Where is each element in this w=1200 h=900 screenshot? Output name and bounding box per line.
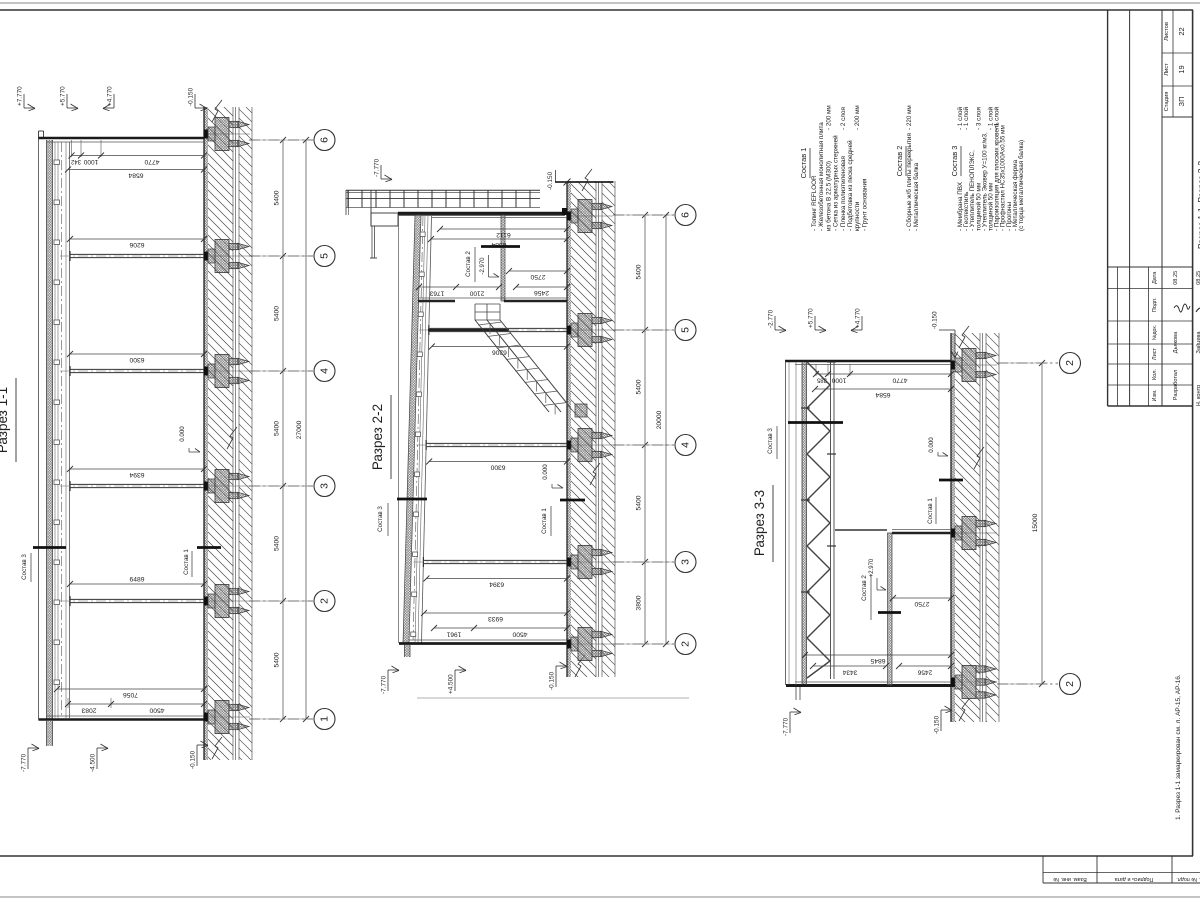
svg-text:- 200 мм: - 200 мм (825, 105, 832, 130)
svg-text:Состав 3: Состав 3 (950, 146, 959, 177)
svg-text:2: 2 (319, 598, 331, 604)
svg-text:08.25: 08.25 (1196, 271, 1200, 285)
svg-text:- 1 слой: - 1 слой (962, 107, 970, 130)
svg-text:1763: 1763 (429, 289, 444, 296)
svg-text:Состав 2: Состав 2 (895, 146, 904, 177)
svg-text:5400: 5400 (274, 306, 281, 321)
svg-text:ЗП: ЗП (1177, 97, 1186, 107)
svg-text:Листов: Листов (1164, 22, 1170, 41)
svg-text:3: 3 (319, 483, 331, 489)
svg-text:1. Разрез 1-1 замаркирован см.: 1. Разрез 1-1 замаркирован см. л. АР-15,… (1175, 674, 1182, 820)
svg-text:Подпись и дата: Подпись и дата (1115, 876, 1154, 882)
svg-text:2456: 2456 (917, 669, 932, 676)
svg-text:2: 2 (1064, 360, 1076, 366)
svg-text:№док.: №док. (1152, 325, 1158, 340)
svg-text:(с торца металлическая балка): (с торца металлическая балка) (1017, 140, 1025, 231)
svg-text:6300: 6300 (129, 356, 144, 363)
svg-text:5400: 5400 (274, 652, 281, 667)
svg-text:5400: 5400 (636, 495, 643, 510)
svg-text:+2.970: +2.970 (869, 558, 875, 577)
svg-text:Изм.: Изм. (1152, 389, 1158, 401)
svg-text:-0.150: -0.150 (190, 750, 197, 769)
svg-text:6584: 6584 (128, 172, 143, 179)
svg-text:из бетона В 22,5 (М300): из бетона В 22,5 (М300) (824, 161, 832, 231)
svg-text:6845: 6845 (870, 657, 885, 664)
svg-text:2100: 2100 (469, 289, 484, 296)
svg-text:1961: 1961 (446, 631, 461, 638)
svg-text:4770: 4770 (892, 377, 907, 384)
svg-text:6206: 6206 (129, 241, 144, 248)
svg-text:Дьякова: Дьякова (1173, 331, 1179, 353)
svg-text:20000: 20000 (656, 410, 663, 429)
svg-text:3800: 3800 (636, 595, 643, 610)
svg-text:+4.770: +4.770 (107, 86, 114, 106)
svg-text:- 3 слоя: - 3 слоя (975, 107, 982, 130)
svg-text:+4.500: +4.500 (448, 674, 455, 694)
svg-text:Разрез 1-1: Разрез 1-1 (0, 387, 10, 453)
svg-text:Подп.: Подп. (1152, 297, 1158, 312)
svg-text:Лист: Лист (1152, 347, 1158, 360)
svg-text:08.25: 08.25 (1173, 271, 1179, 285)
svg-text:2: 2 (1064, 681, 1076, 687)
svg-text:+5.770: +5.770 (808, 308, 815, 328)
svg-text:Состав 1: Состав 1 (541, 508, 548, 534)
svg-text:+7.770: +7.770 (17, 86, 24, 106)
svg-text:-7.770: -7.770 (381, 675, 388, 694)
svg-text:- Топинг REFLOOR: - Топинг REFLOOR (811, 175, 818, 231)
svg-text:4500: 4500 (149, 707, 164, 714)
svg-text:1000: 1000 (83, 158, 98, 165)
svg-text:2: 2 (680, 641, 692, 647)
svg-text:4: 4 (319, 368, 331, 374)
svg-text:6394: 6394 (129, 471, 144, 478)
svg-text:6: 6 (319, 137, 331, 143)
svg-text:1: 1 (319, 716, 331, 722)
svg-text:385: 385 (816, 377, 827, 383)
svg-text:Состав 1: Состав 1 (799, 148, 808, 179)
svg-text:Разрез 3-3: Разрез 3-3 (752, 490, 767, 556)
svg-text:19: 19 (1177, 65, 1186, 73)
svg-text:6300: 6300 (490, 464, 505, 471)
svg-text:5400: 5400 (274, 421, 281, 436)
svg-text:+4.770: +4.770 (855, 308, 862, 328)
svg-text:5: 5 (680, 327, 692, 333)
svg-text:- Грунт основания: - Грунт основания (861, 179, 868, 231)
svg-text:-2.970: -2.970 (480, 257, 486, 275)
svg-text:Состав 2: Состав 2 (861, 575, 868, 601)
svg-text:-0.150: -0.150 (934, 715, 941, 734)
svg-text:- Сборные ж/б плиты перекрытия: - Сборные ж/б плиты перекрытия (905, 133, 913, 231)
svg-text:- 220 мм: - 220 мм (906, 105, 913, 130)
svg-text:15000: 15000 (1032, 513, 1039, 532)
svg-text:6: 6 (680, 212, 692, 218)
svg-text:Взам. инв. №: Взам. инв. № (1053, 876, 1087, 882)
svg-text:Состав 3: Состав 3 (21, 554, 28, 580)
svg-text:- Металлическая балка: - Металлическая балка (912, 162, 920, 231)
svg-text:2750: 2750 (530, 273, 545, 280)
svg-text:-7.770: -7.770 (21, 753, 28, 772)
svg-text:1000: 1000 (831, 377, 846, 384)
svg-text:Состав 3: Состав 3 (377, 506, 384, 532)
svg-text:-0.150: -0.150 (188, 87, 195, 106)
svg-text:Кол.: Кол. (1152, 369, 1158, 381)
svg-text:6489: 6489 (130, 576, 145, 583)
svg-text:Разработал: Разработал (1173, 370, 1179, 400)
svg-text:2750: 2750 (914, 600, 929, 607)
svg-text:+5.770: +5.770 (60, 86, 67, 106)
svg-text:-0.150: -0.150 (932, 311, 939, 329)
svg-text:5400: 5400 (274, 536, 281, 551)
svg-text:- Пленка полиэтиленовая: - Пленка полиэтиленовая (840, 156, 847, 231)
svg-text:3: 3 (680, 559, 692, 565)
svg-text:2456: 2456 (534, 289, 549, 296)
svg-text:Н. контр: Н. контр (1196, 385, 1200, 407)
svg-text:-0.150: -0.150 (547, 171, 554, 190)
svg-text:Разрез 2-2: Разрез 2-2 (370, 404, 385, 470)
svg-text:0.000: 0.000 (928, 437, 935, 453)
svg-text:342: 342 (70, 158, 81, 164)
svg-text:5400: 5400 (636, 379, 643, 394)
svg-text:5400: 5400 (274, 190, 281, 205)
svg-text:-2.770: -2.770 (768, 309, 775, 328)
svg-text:5: 5 (319, 253, 331, 259)
svg-text:27000: 27000 (296, 420, 303, 439)
svg-text:5400: 5400 (636, 264, 643, 279)
svg-text:0.000: 0.000 (179, 426, 186, 442)
svg-text:Состав 1: Состав 1 (927, 498, 934, 524)
svg-text:4500: 4500 (512, 631, 527, 638)
svg-text:Стадия: Стадия (1164, 92, 1170, 112)
svg-text:4: 4 (680, 442, 692, 448)
svg-text:22: 22 (1177, 27, 1186, 35)
svg-text:3434: 3434 (842, 669, 857, 676)
svg-text:-7.770: -7.770 (374, 158, 381, 177)
svg-text:- 2 слоя: - 2 слоя (840, 107, 847, 130)
svg-text:-0.150: -0.150 (549, 671, 556, 690)
svg-text:4770: 4770 (144, 158, 159, 165)
svg-text:Состав 2: Состав 2 (465, 251, 472, 277)
svg-text:7056: 7056 (123, 691, 138, 698)
svg-text:6584: 6584 (875, 391, 890, 398)
svg-text:0.000: 0.000 (542, 464, 549, 480)
svg-text:- Подбетовка из песка средней: - Подбетовка из песка средней (846, 140, 854, 231)
svg-text:Состав 1: Состав 1 (183, 549, 190, 575)
svg-text:2083: 2083 (81, 707, 96, 714)
svg-text:Дата: Дата (1152, 271, 1158, 284)
svg-text:Лист: Лист (1164, 63, 1170, 76)
svg-text:6933: 6933 (488, 615, 503, 622)
svg-text:Зайцева: Зайцева (1195, 331, 1200, 354)
svg-text:Состав 3: Состав 3 (767, 428, 774, 454)
svg-text:6112: 6112 (496, 231, 511, 238)
svg-text:Разрез 1-1, Разрез 2-2: Разрез 1-1, Разрез 2-2 (1196, 161, 1200, 249)
svg-text:- 200 мм: - 200 мм (854, 105, 861, 130)
svg-text:-4.500: -4.500 (90, 753, 97, 772)
svg-text:крупности: крупности (854, 201, 861, 231)
svg-text:- Сетка из арматурных стержней: - Сетка из арматурных стержней (832, 135, 840, 231)
svg-text:-7.770: -7.770 (783, 717, 790, 736)
svg-text:6394: 6394 (489, 581, 504, 588)
svg-text:- Железобетонная монолитная пл: - Железобетонная монолитная плита (817, 122, 825, 231)
svg-text:Инв. № подл.: Инв. № подл. (1176, 876, 1200, 882)
